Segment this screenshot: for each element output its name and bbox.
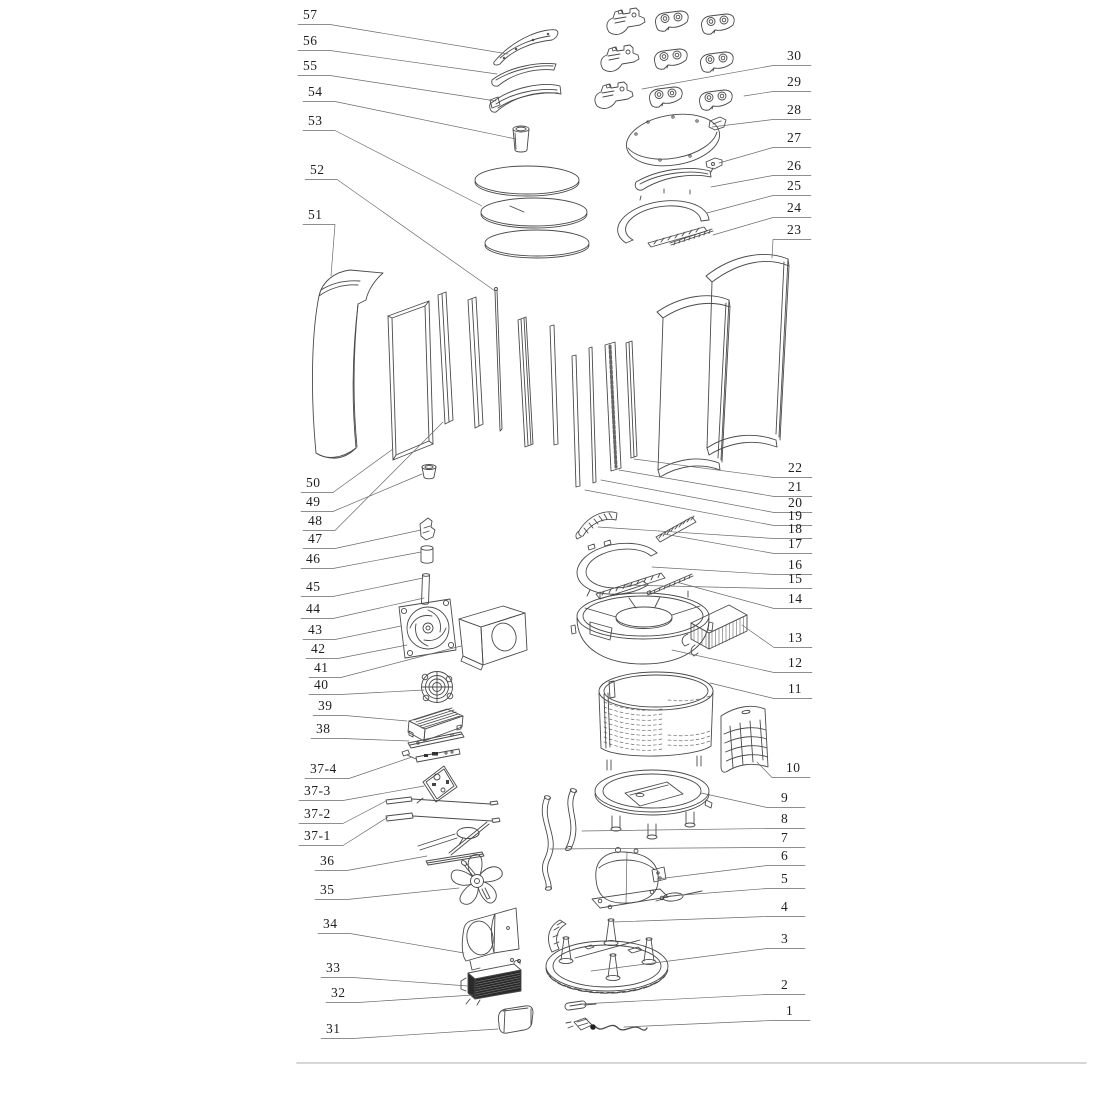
- leader-lines: [298, 25, 812, 1039]
- callout-24: 24: [787, 201, 802, 215]
- part-50-door-panel: [388, 301, 433, 460]
- part-36-bar: [426, 852, 484, 865]
- callout-40: 40: [314, 678, 329, 692]
- callout-42: 42: [311, 642, 326, 656]
- leader-18: [598, 527, 812, 539]
- part-13-fin-coil: [682, 605, 747, 656]
- part-6-compressor: [592, 848, 668, 909]
- callout-14: 14: [788, 592, 803, 606]
- leader-21: [619, 470, 812, 497]
- part-1-power-cord: [566, 1018, 647, 1030]
- callout-22: 22: [788, 461, 803, 475]
- leader-10: [757, 762, 810, 778]
- callout-28: 28: [787, 103, 802, 117]
- callout-36: 36: [320, 854, 335, 868]
- callout-26: 26: [787, 159, 802, 173]
- callout-15: 15: [788, 572, 803, 586]
- callout-47: 47: [308, 532, 323, 546]
- leader-28: [712, 120, 811, 128]
- callout-45: 45: [306, 580, 321, 594]
- callout-4: 4: [781, 900, 788, 914]
- part-23-rear-shell: [706, 255, 789, 455]
- leader-38: [311, 739, 409, 742]
- part-11-perforated-drum: [599, 672, 713, 756]
- part-18-grip: [576, 512, 617, 539]
- exploded-parts-diagram: 5756555453525150494847464544434241403938…: [0, 0, 1100, 1100]
- part-53-plate-stack: [475, 166, 589, 258]
- leader-48: [303, 422, 443, 531]
- part-42-scroll-duct: [459, 606, 527, 670]
- part-56-wedge: [492, 64, 556, 87]
- part-40-fan-guard: [422, 672, 453, 703]
- callout-11: 11: [788, 682, 802, 696]
- callout-48: 48: [308, 514, 323, 528]
- callout-9: 9: [781, 791, 788, 805]
- leader-30: [642, 66, 811, 90]
- callout-54: 54: [308, 85, 323, 99]
- leader-9: [701, 793, 805, 808]
- callout-57: 57: [303, 8, 318, 22]
- leader-51: [303, 225, 335, 277]
- callout-10: 10: [786, 761, 801, 775]
- part-27-latch: [706, 158, 722, 172]
- callout-16: 16: [788, 558, 803, 572]
- leader-1: [624, 1021, 810, 1028]
- callout-33: 33: [326, 961, 341, 975]
- callout-39: 39: [318, 699, 333, 713]
- part-37-4-display-board: [402, 749, 460, 762]
- callout-46: 46: [306, 552, 321, 566]
- callout-37-1: 37-1: [304, 829, 331, 843]
- callout-21: 21: [788, 480, 803, 494]
- callout-43: 43: [308, 623, 323, 637]
- callout-5: 5: [781, 872, 788, 886]
- part-52-rod: [495, 288, 503, 432]
- part-25-ring-frame: [618, 189, 709, 247]
- leader-41: [309, 646, 461, 678]
- part-7-hose: [542, 795, 553, 890]
- callout-8: 8: [781, 812, 788, 826]
- leader-23: [772, 240, 811, 259]
- part-55-curved-trim: [490, 85, 561, 113]
- leader-3: [591, 949, 805, 972]
- callout-32: 32: [331, 986, 346, 1000]
- callout-18: 18: [788, 522, 803, 536]
- callout-55: 55: [303, 59, 318, 73]
- leader-35: [315, 888, 459, 900]
- callout-6: 6: [781, 849, 788, 863]
- leader-2: [580, 995, 805, 1005]
- callout-2: 2: [781, 978, 788, 992]
- diagram-canvas: [0, 0, 1100, 1100]
- part-26-wedge-plate: [635, 169, 711, 191]
- callout-7: 7: [781, 831, 788, 845]
- callout-52: 52: [310, 163, 325, 177]
- callout-37-2: 37-2: [304, 807, 331, 821]
- hinge-hardware-group: [595, 8, 734, 110]
- leader-15: [625, 585, 812, 589]
- callout-31: 31: [326, 1022, 341, 1036]
- callout-53: 53: [308, 114, 323, 128]
- callout-50: 50: [306, 476, 321, 490]
- leader-55: [298, 76, 496, 102]
- leader-56: [298, 51, 497, 75]
- part-38-bracket-strip: [408, 732, 464, 748]
- leader-29: [744, 92, 811, 97]
- callout-23: 23: [787, 223, 802, 237]
- callout-1: 1: [786, 1004, 793, 1018]
- callout-37-3: 37-3: [304, 784, 331, 798]
- part-47-clip: [420, 518, 435, 540]
- leader-7: [550, 848, 805, 850]
- leader-8: [582, 829, 805, 832]
- part-37-1-sensor-probe: [386, 813, 500, 823]
- part-4-corner-buffer: [549, 920, 566, 952]
- part-9-base-pan: [595, 756, 712, 839]
- part-49-cap: [422, 465, 436, 479]
- leader-32: [326, 995, 473, 1003]
- part-43-axial-fan: [399, 599, 456, 658]
- callout-25: 25: [787, 179, 802, 193]
- callout-51: 51: [308, 208, 323, 222]
- leader-57: [298, 25, 508, 55]
- callout-41: 41: [314, 661, 329, 675]
- callout-56: 56: [303, 34, 318, 48]
- callout-37-4: 37-4: [310, 762, 337, 776]
- callout-38: 38: [316, 722, 331, 736]
- part-51-front-shell: [312, 270, 383, 458]
- part-31-tray: [498, 1006, 533, 1033]
- part-46-bushing: [421, 546, 433, 563]
- leader-4: [613, 917, 805, 923]
- leader-52: [305, 180, 495, 292]
- leader-53: [303, 131, 482, 207]
- leader-5: [670, 889, 805, 897]
- part-thermostat-assembly: [418, 822, 489, 855]
- callout-12: 12: [788, 656, 803, 670]
- callout-30: 30: [787, 49, 802, 63]
- leader-34: [318, 934, 464, 954]
- part-2-fuse-capsule: [565, 1001, 596, 1010]
- part-33-condenser-coil: [461, 959, 521, 1006]
- vertical-strips-group: [438, 292, 637, 487]
- part-57-top-blade: [494, 30, 558, 65]
- part-17-brush-strip: [656, 516, 696, 542]
- leader-31: [321, 1029, 498, 1039]
- part-16-horseshoe-ring: [577, 540, 665, 599]
- part-10-filter-panel: [721, 706, 768, 772]
- callout-35: 35: [320, 883, 335, 897]
- leader-54: [303, 102, 516, 140]
- callout-34: 34: [323, 917, 338, 931]
- callout-3: 3: [781, 932, 788, 946]
- part-37-3-control-board: [417, 766, 457, 803]
- callout-29: 29: [787, 75, 802, 89]
- part-8-drain-hose: [565, 788, 577, 851]
- callout-44: 44: [306, 602, 321, 616]
- callout-49: 49: [306, 495, 321, 509]
- callout-27: 27: [787, 131, 802, 145]
- part-39-electric-box: [408, 708, 463, 741]
- callout-17: 17: [788, 537, 803, 551]
- part-3-base-ring: [546, 919, 668, 993]
- callout-13: 13: [788, 631, 803, 645]
- leader-19: [585, 490, 812, 526]
- part-28-top-plate: [623, 108, 726, 172]
